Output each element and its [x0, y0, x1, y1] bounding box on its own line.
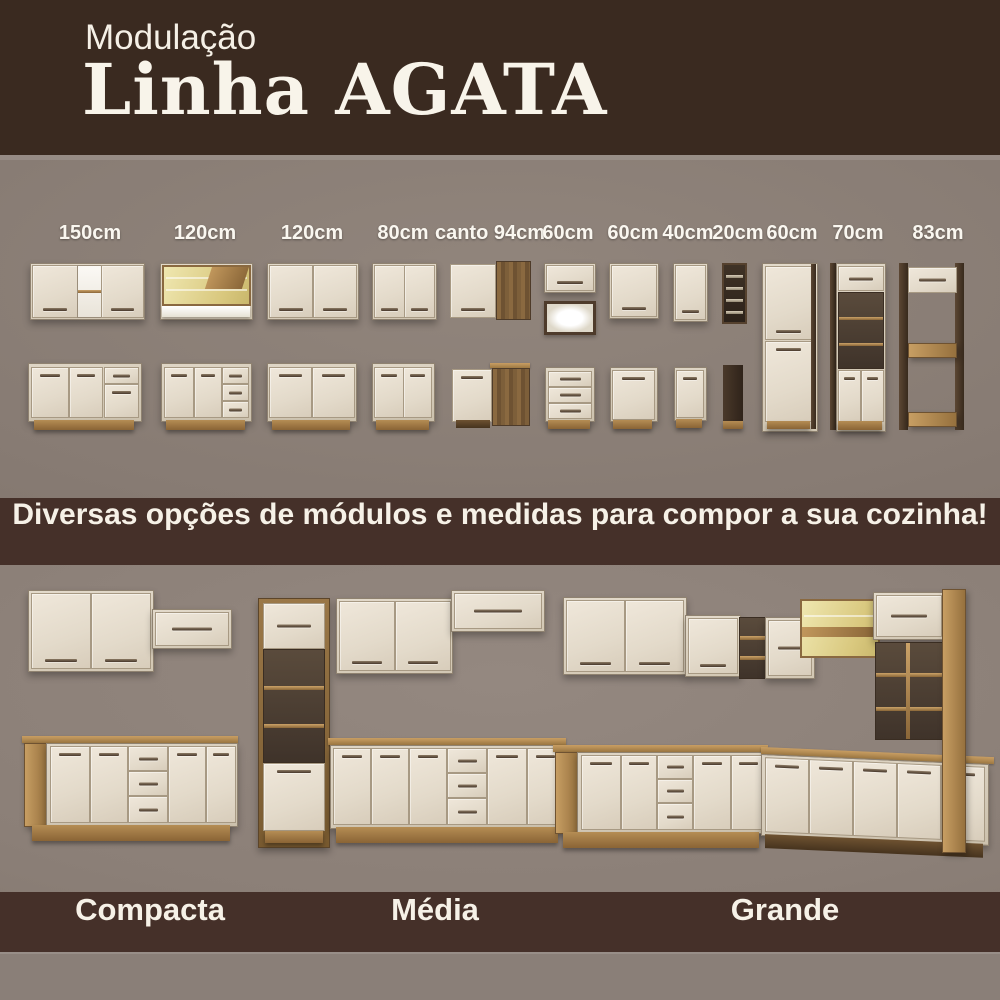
- shelf: [839, 317, 883, 320]
- shelf: [726, 275, 743, 278]
- plinth: [376, 420, 429, 430]
- drawer-front: [222, 367, 249, 384]
- drawer-front: [657, 755, 693, 779]
- cabinet-door: [908, 267, 957, 293]
- shelf: [740, 656, 766, 660]
- drawer-front: [128, 796, 168, 823]
- message-band: Diversas opções de módulos e medidas par…: [0, 498, 1000, 565]
- module-size-label: 120cm: [145, 222, 265, 246]
- cabinet-door: [861, 370, 884, 422]
- cabinet-door: [765, 266, 812, 340]
- cabinet-door: [374, 265, 405, 318]
- plinth: [563, 832, 759, 848]
- plinth: [676, 419, 702, 428]
- tall-wood-panel: [942, 589, 966, 853]
- cabinet-door: [168, 746, 206, 823]
- cabinet-door: [50, 746, 90, 823]
- cabinet-door: [101, 265, 144, 318]
- plinth: [723, 421, 743, 429]
- shelf-divider: [906, 643, 910, 739]
- drawer-front: [548, 371, 592, 387]
- cabinet-door: [269, 367, 312, 418]
- cabinet-door: [395, 601, 451, 671]
- cabinet-door: [312, 367, 355, 418]
- module-corner-wall-cabinet: [450, 261, 530, 319]
- wall-cabinet: [873, 592, 945, 640]
- plinth: [265, 831, 323, 843]
- drawer-front: [447, 798, 487, 825]
- cabinet-door: [374, 367, 404, 418]
- cabinet-door: [263, 603, 325, 649]
- module-60-base-cabinet: [610, 367, 658, 430]
- glass-shelf: [804, 615, 876, 617]
- module-60-flipup-cabinet: [544, 263, 596, 293]
- open-shelf: [77, 265, 102, 318]
- cabinet-door: [452, 369, 492, 422]
- module-size-label: 83cm: [878, 222, 998, 246]
- countertop: [328, 738, 566, 745]
- base-cabinet-run: [328, 738, 566, 848]
- cabinet-door: [581, 755, 621, 830]
- wood-door: [492, 368, 530, 426]
- side-panel: [555, 752, 579, 834]
- drawer-front: [657, 779, 693, 803]
- plinth: [34, 420, 134, 430]
- kitchen-name-media: Média: [330, 892, 540, 952]
- cabinet-door: [32, 265, 78, 318]
- module-60-drawer-base: [545, 367, 595, 430]
- cabinet-door: [876, 595, 942, 637]
- drawer-front: [222, 384, 249, 401]
- banner-text: Diversas opções de módulos e medidas par…: [0, 498, 1000, 565]
- module-40-base-cabinet: [674, 367, 707, 429]
- plinth: [838, 421, 882, 430]
- wall-cabinet: [28, 590, 154, 672]
- cabinet-door: [90, 746, 128, 823]
- drawer-front: [222, 401, 249, 418]
- cabinet-door: [612, 370, 655, 420]
- wood-beam: [908, 343, 957, 358]
- cabinet-door: [765, 757, 809, 834]
- shelf: [78, 290, 101, 293]
- lighted-niche: [544, 301, 596, 335]
- wood-panel: [205, 267, 249, 289]
- tall-shelf-tower: [258, 598, 330, 848]
- cabinet-door: [676, 370, 704, 418]
- bottle-rack: [722, 263, 747, 324]
- cabinet-door: [693, 755, 731, 830]
- kitchens-section: [0, 565, 1000, 892]
- shelf: [726, 287, 743, 290]
- glass-shelf: [166, 289, 247, 291]
- cabinet-door: [339, 601, 395, 671]
- cabinet-door: [104, 384, 139, 418]
- cabinet-door: [313, 265, 357, 318]
- cabinet-door: [809, 759, 853, 836]
- wood-band: [802, 627, 874, 637]
- wall-cabinet: [563, 597, 687, 675]
- module-120-glass-wall-cabinet: [160, 263, 253, 320]
- kitchen-name-grande: Grande: [660, 892, 910, 952]
- wood-panel: [496, 261, 531, 320]
- countertop: [553, 745, 768, 752]
- wall-cabinet: [451, 590, 545, 632]
- base-cabinet-run: [553, 745, 768, 853]
- cabinet-door: [263, 763, 325, 831]
- plinth: [336, 827, 558, 843]
- wall-cabinet: [152, 609, 232, 649]
- glass-door: [162, 265, 251, 306]
- plinth: [32, 825, 230, 841]
- kitchen-grande: [548, 577, 995, 882]
- cabinet-door: [546, 265, 594, 291]
- shelf: [740, 636, 766, 640]
- module-83-fridge-frame: [899, 263, 964, 430]
- plinth: [767, 421, 810, 429]
- cabinet-door: [69, 367, 103, 418]
- cabinet-door: [853, 761, 897, 838]
- countertop: [22, 736, 238, 743]
- wall-cabinet: [685, 615, 741, 677]
- shelf: [839, 343, 883, 346]
- light-strip: [162, 306, 250, 317]
- plinth: [613, 420, 652, 429]
- side-panel: [24, 743, 48, 827]
- cabinet-door: [31, 367, 69, 418]
- modules-section: 150cm 120cm 120cm 80cm canto 94cm 60cm 6…: [0, 155, 1000, 503]
- drawer-front: [548, 387, 592, 403]
- shelf: [264, 724, 324, 728]
- shelf: [726, 311, 743, 314]
- header-band: Modulação Linha AGATA: [0, 0, 1000, 155]
- cabinet-door: [621, 755, 657, 830]
- drawer-front: [128, 746, 168, 771]
- shelf: [726, 299, 743, 302]
- side-panel: [899, 263, 908, 430]
- module-size-label: 150cm: [30, 222, 150, 246]
- module-60-tall-pantry: [762, 263, 818, 432]
- open-shelves: [739, 617, 767, 679]
- cabinet-door: [31, 593, 91, 669]
- cabinet-door: [454, 593, 542, 629]
- open-niche: [723, 365, 743, 429]
- drawer-front: [447, 748, 487, 773]
- plinth: [272, 420, 350, 430]
- module-80-wall-cabinet: [372, 263, 437, 320]
- plinth: [456, 420, 490, 428]
- glass-led-cabinet: [800, 599, 880, 658]
- kitchen-compacta: [18, 583, 240, 873]
- cabinet-door: [409, 748, 447, 825]
- side-panel: [811, 264, 816, 429]
- shelf: [264, 686, 324, 690]
- cabinet-door: [625, 600, 684, 672]
- module-120-base-drawers: [161, 363, 252, 430]
- cabinet-door: [688, 618, 738, 674]
- cabinet-door: [371, 748, 409, 825]
- footer-strip: [0, 952, 1000, 1000]
- cabinet-door: [611, 265, 657, 317]
- cabinet-door: [675, 265, 706, 320]
- module-40-wall-cabinet: [673, 263, 708, 322]
- cabinet-door: [269, 265, 313, 318]
- drawer-front: [548, 403, 592, 419]
- cabinet-door: [838, 370, 861, 422]
- page-title: Linha AGATA: [82, 48, 607, 131]
- appliance-niche: [838, 292, 884, 369]
- drawer-front: [104, 367, 139, 384]
- module-150-wall-cabinet: [30, 263, 145, 320]
- cabinet-door: [765, 341, 812, 422]
- base-cabinet-run: [22, 736, 238, 848]
- drawer-front: [657, 803, 693, 830]
- module-120-wall-cabinet: [267, 263, 359, 320]
- module-150-base-cabinet: [28, 363, 142, 430]
- drawer-front: [447, 773, 487, 798]
- cabinet-door: [155, 612, 229, 646]
- module-80-base-cabinet: [372, 363, 435, 430]
- cabinet-door: [194, 367, 222, 418]
- cabinet-door: [450, 264, 496, 318]
- open-shelves: [263, 649, 325, 763]
- cabinet-door: [838, 266, 884, 291]
- kitchen-names-band: Compacta Média Grande: [0, 892, 1000, 952]
- cabinet-door: [487, 748, 527, 825]
- wood-beam: [908, 412, 957, 427]
- cabinet-door: [566, 600, 625, 672]
- cabinet-door: [404, 265, 435, 318]
- module-corner-base-cabinet: [450, 356, 530, 430]
- wall-cabinet: [336, 598, 453, 674]
- cabinet-door: [91, 593, 151, 669]
- drawer-front: [128, 771, 168, 796]
- plinth: [548, 420, 590, 429]
- cabinet-door: [206, 746, 236, 823]
- module-60-wall-cabinet: [609, 263, 659, 319]
- module-120-base-cabinet: [267, 363, 357, 430]
- cabinet-door: [164, 367, 194, 418]
- kitchen-media: [248, 580, 566, 880]
- cabinet-door: [333, 748, 371, 825]
- cabinet-door: [897, 763, 941, 840]
- open-shelves: [875, 642, 943, 740]
- plinth: [166, 420, 245, 430]
- kitchen-name-compacta: Compacta: [40, 892, 260, 952]
- promo-image: Modulação Linha AGATA 150cm 120cm 120cm …: [0, 0, 1000, 1000]
- cabinet-door: [403, 367, 432, 418]
- module-70-oven-tower: [830, 263, 887, 430]
